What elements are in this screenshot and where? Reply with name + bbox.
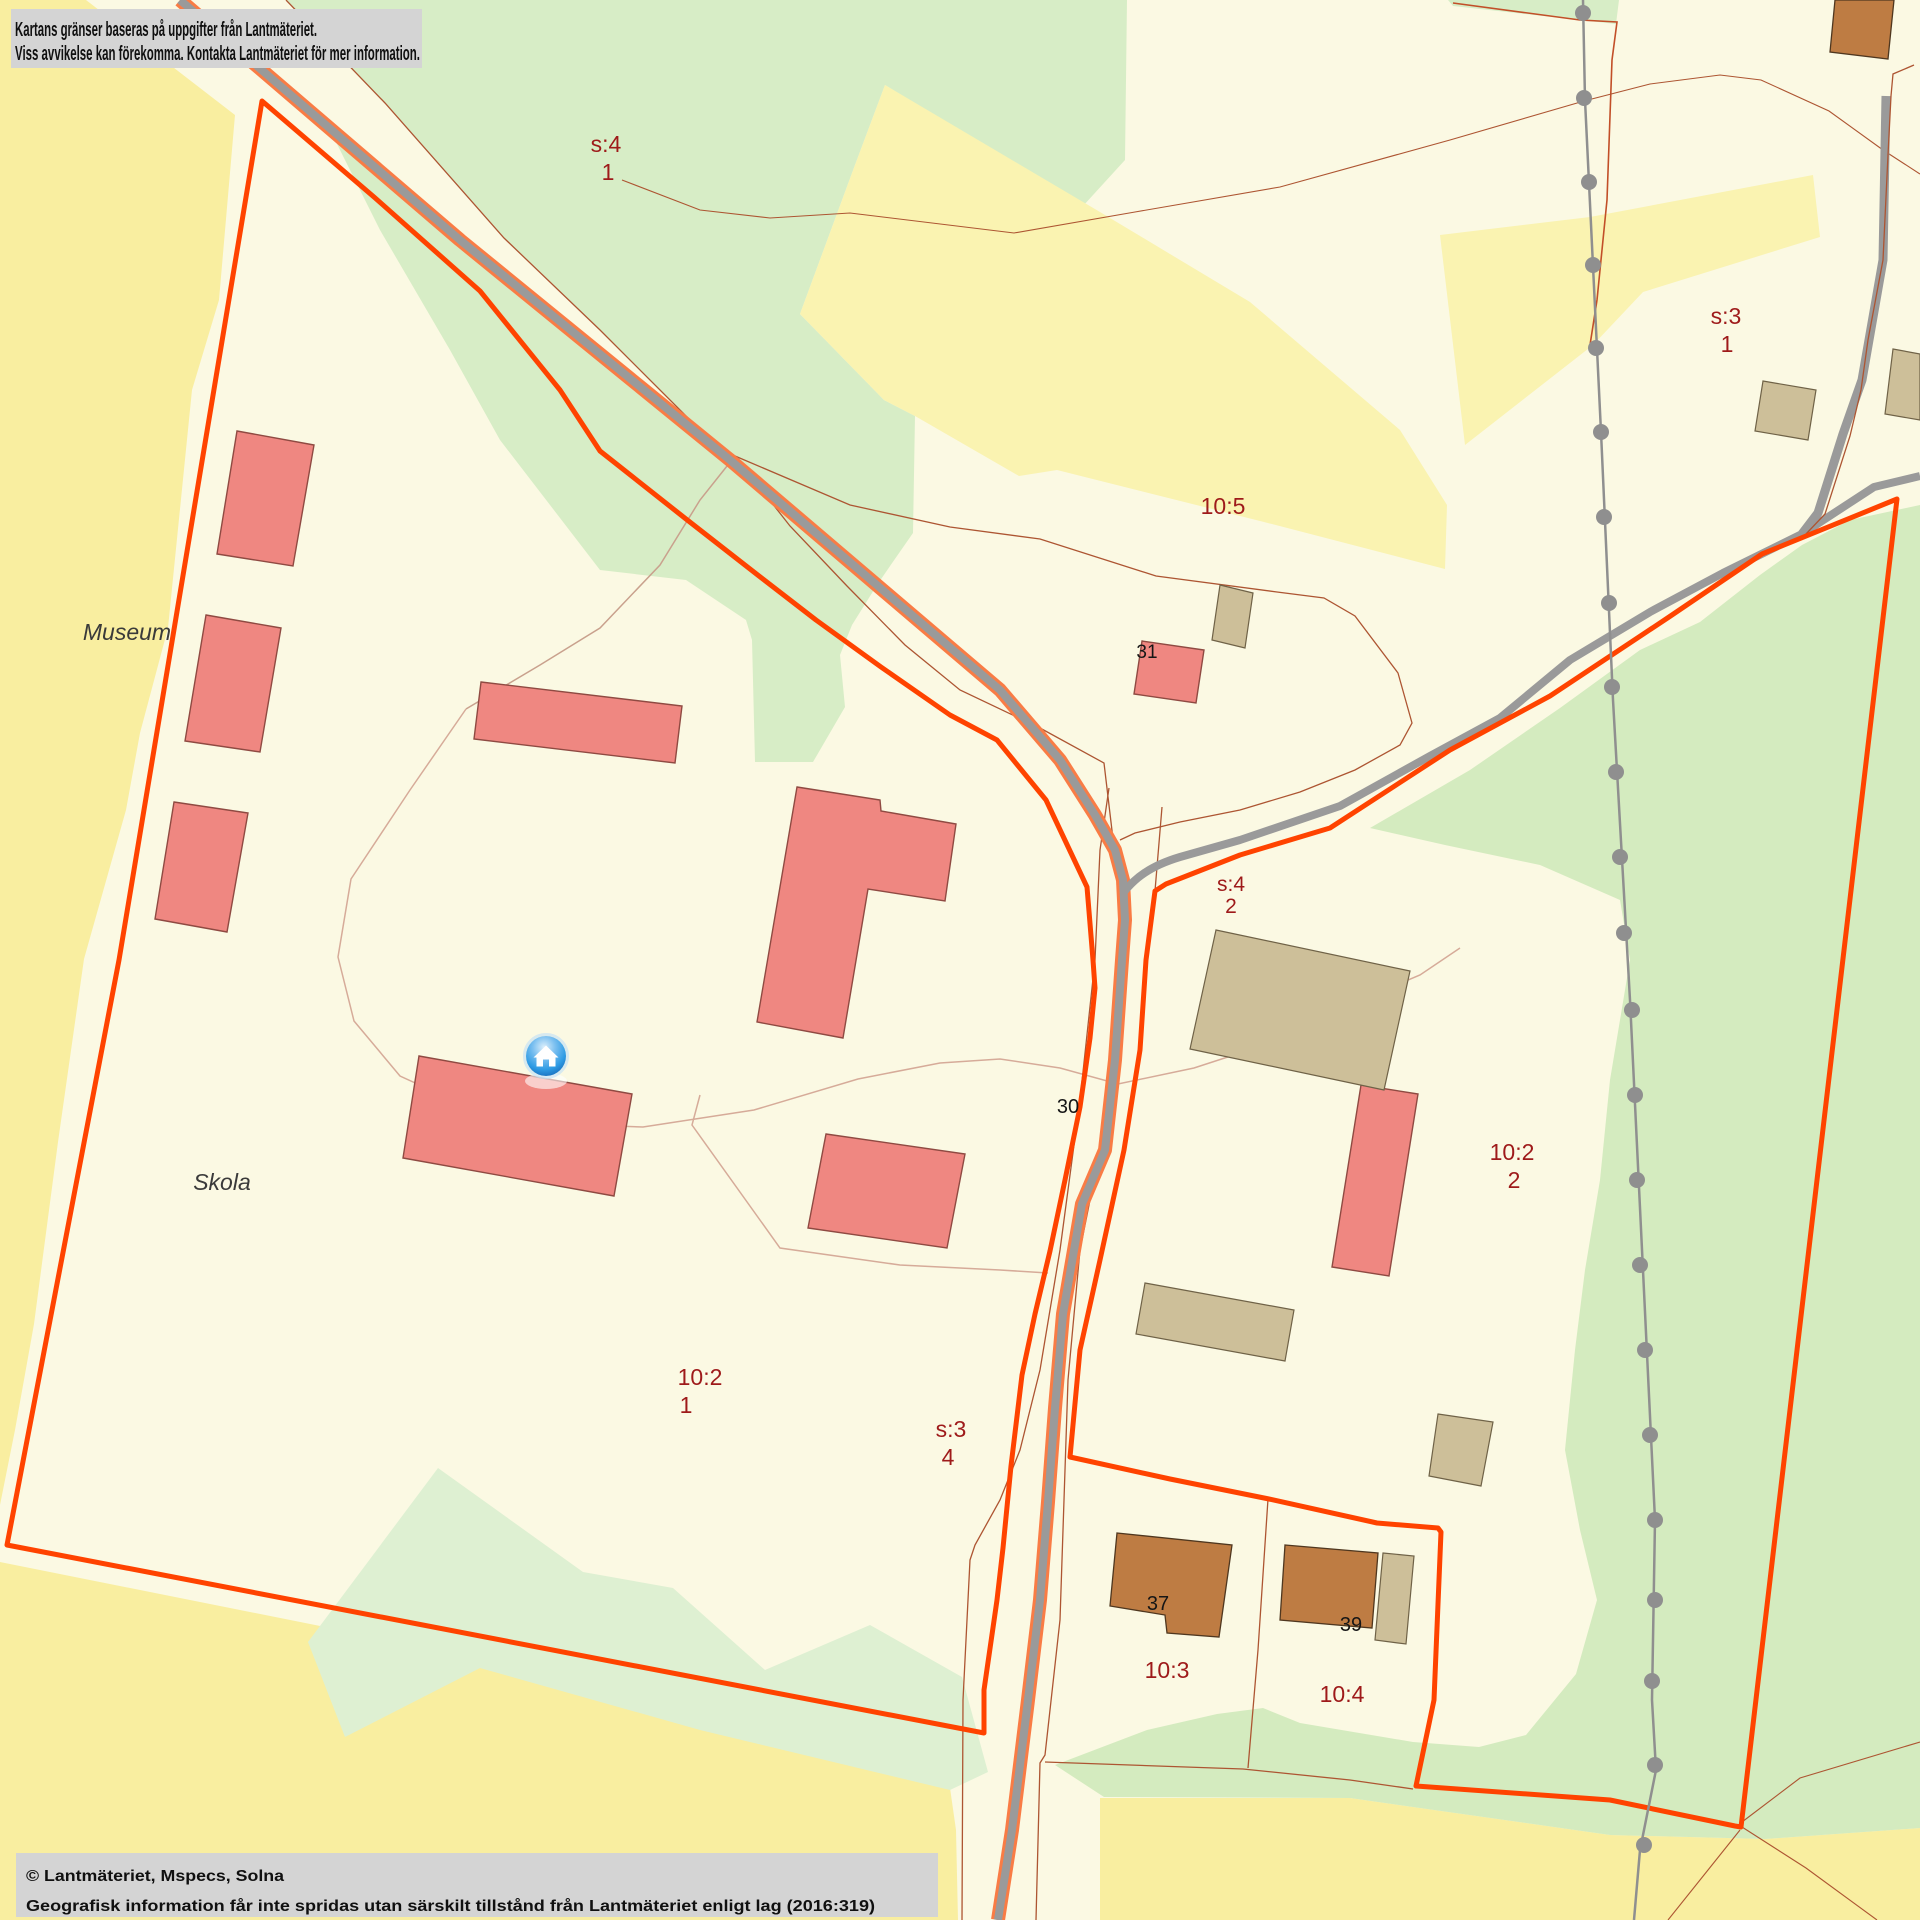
svg-text:1: 1: [680, 1392, 693, 1418]
svg-text:10:3: 10:3: [1145, 1657, 1190, 1683]
svg-text:Viss avvikelse kan förekomma.: Viss avvikelse kan förekomma. Kontakta L…: [15, 43, 420, 65]
svg-text:39: 39: [1340, 1614, 1362, 1636]
svg-text:10:5: 10:5: [1201, 493, 1246, 519]
svg-text:2: 2: [1508, 1167, 1521, 1193]
svg-text:1: 1: [1721, 331, 1734, 357]
svg-text:s:3: s:3: [936, 1416, 967, 1442]
svg-text:Geografisk information får int: Geografisk information får inte spridas …: [26, 1897, 875, 1915]
svg-text:© Lantmäteriet, Mspecs, Solna: © Lantmäteriet, Mspecs, Solna: [26, 1868, 284, 1885]
svg-text:Museum: Museum: [83, 619, 171, 645]
svg-text:s:4: s:4: [591, 131, 622, 157]
svg-text:31: 31: [1136, 642, 1157, 663]
svg-text:37: 37: [1147, 1593, 1169, 1615]
svg-text:s:3: s:3: [1711, 303, 1742, 329]
svg-text:1: 1: [602, 159, 615, 185]
svg-text:4: 4: [942, 1444, 955, 1470]
svg-text:2: 2: [1225, 895, 1237, 918]
svg-text:30: 30: [1057, 1096, 1079, 1118]
svg-text:Kartans gränser baseras på upp: Kartans gränser baseras på uppgifter frå…: [15, 18, 317, 41]
svg-text:10:2: 10:2: [1490, 1139, 1535, 1165]
svg-text:s:4: s:4: [1217, 873, 1245, 896]
svg-text:10:4: 10:4: [1320, 1681, 1365, 1707]
svg-text:10:2: 10:2: [678, 1364, 723, 1390]
svg-text:Skola: Skola: [193, 1169, 251, 1195]
